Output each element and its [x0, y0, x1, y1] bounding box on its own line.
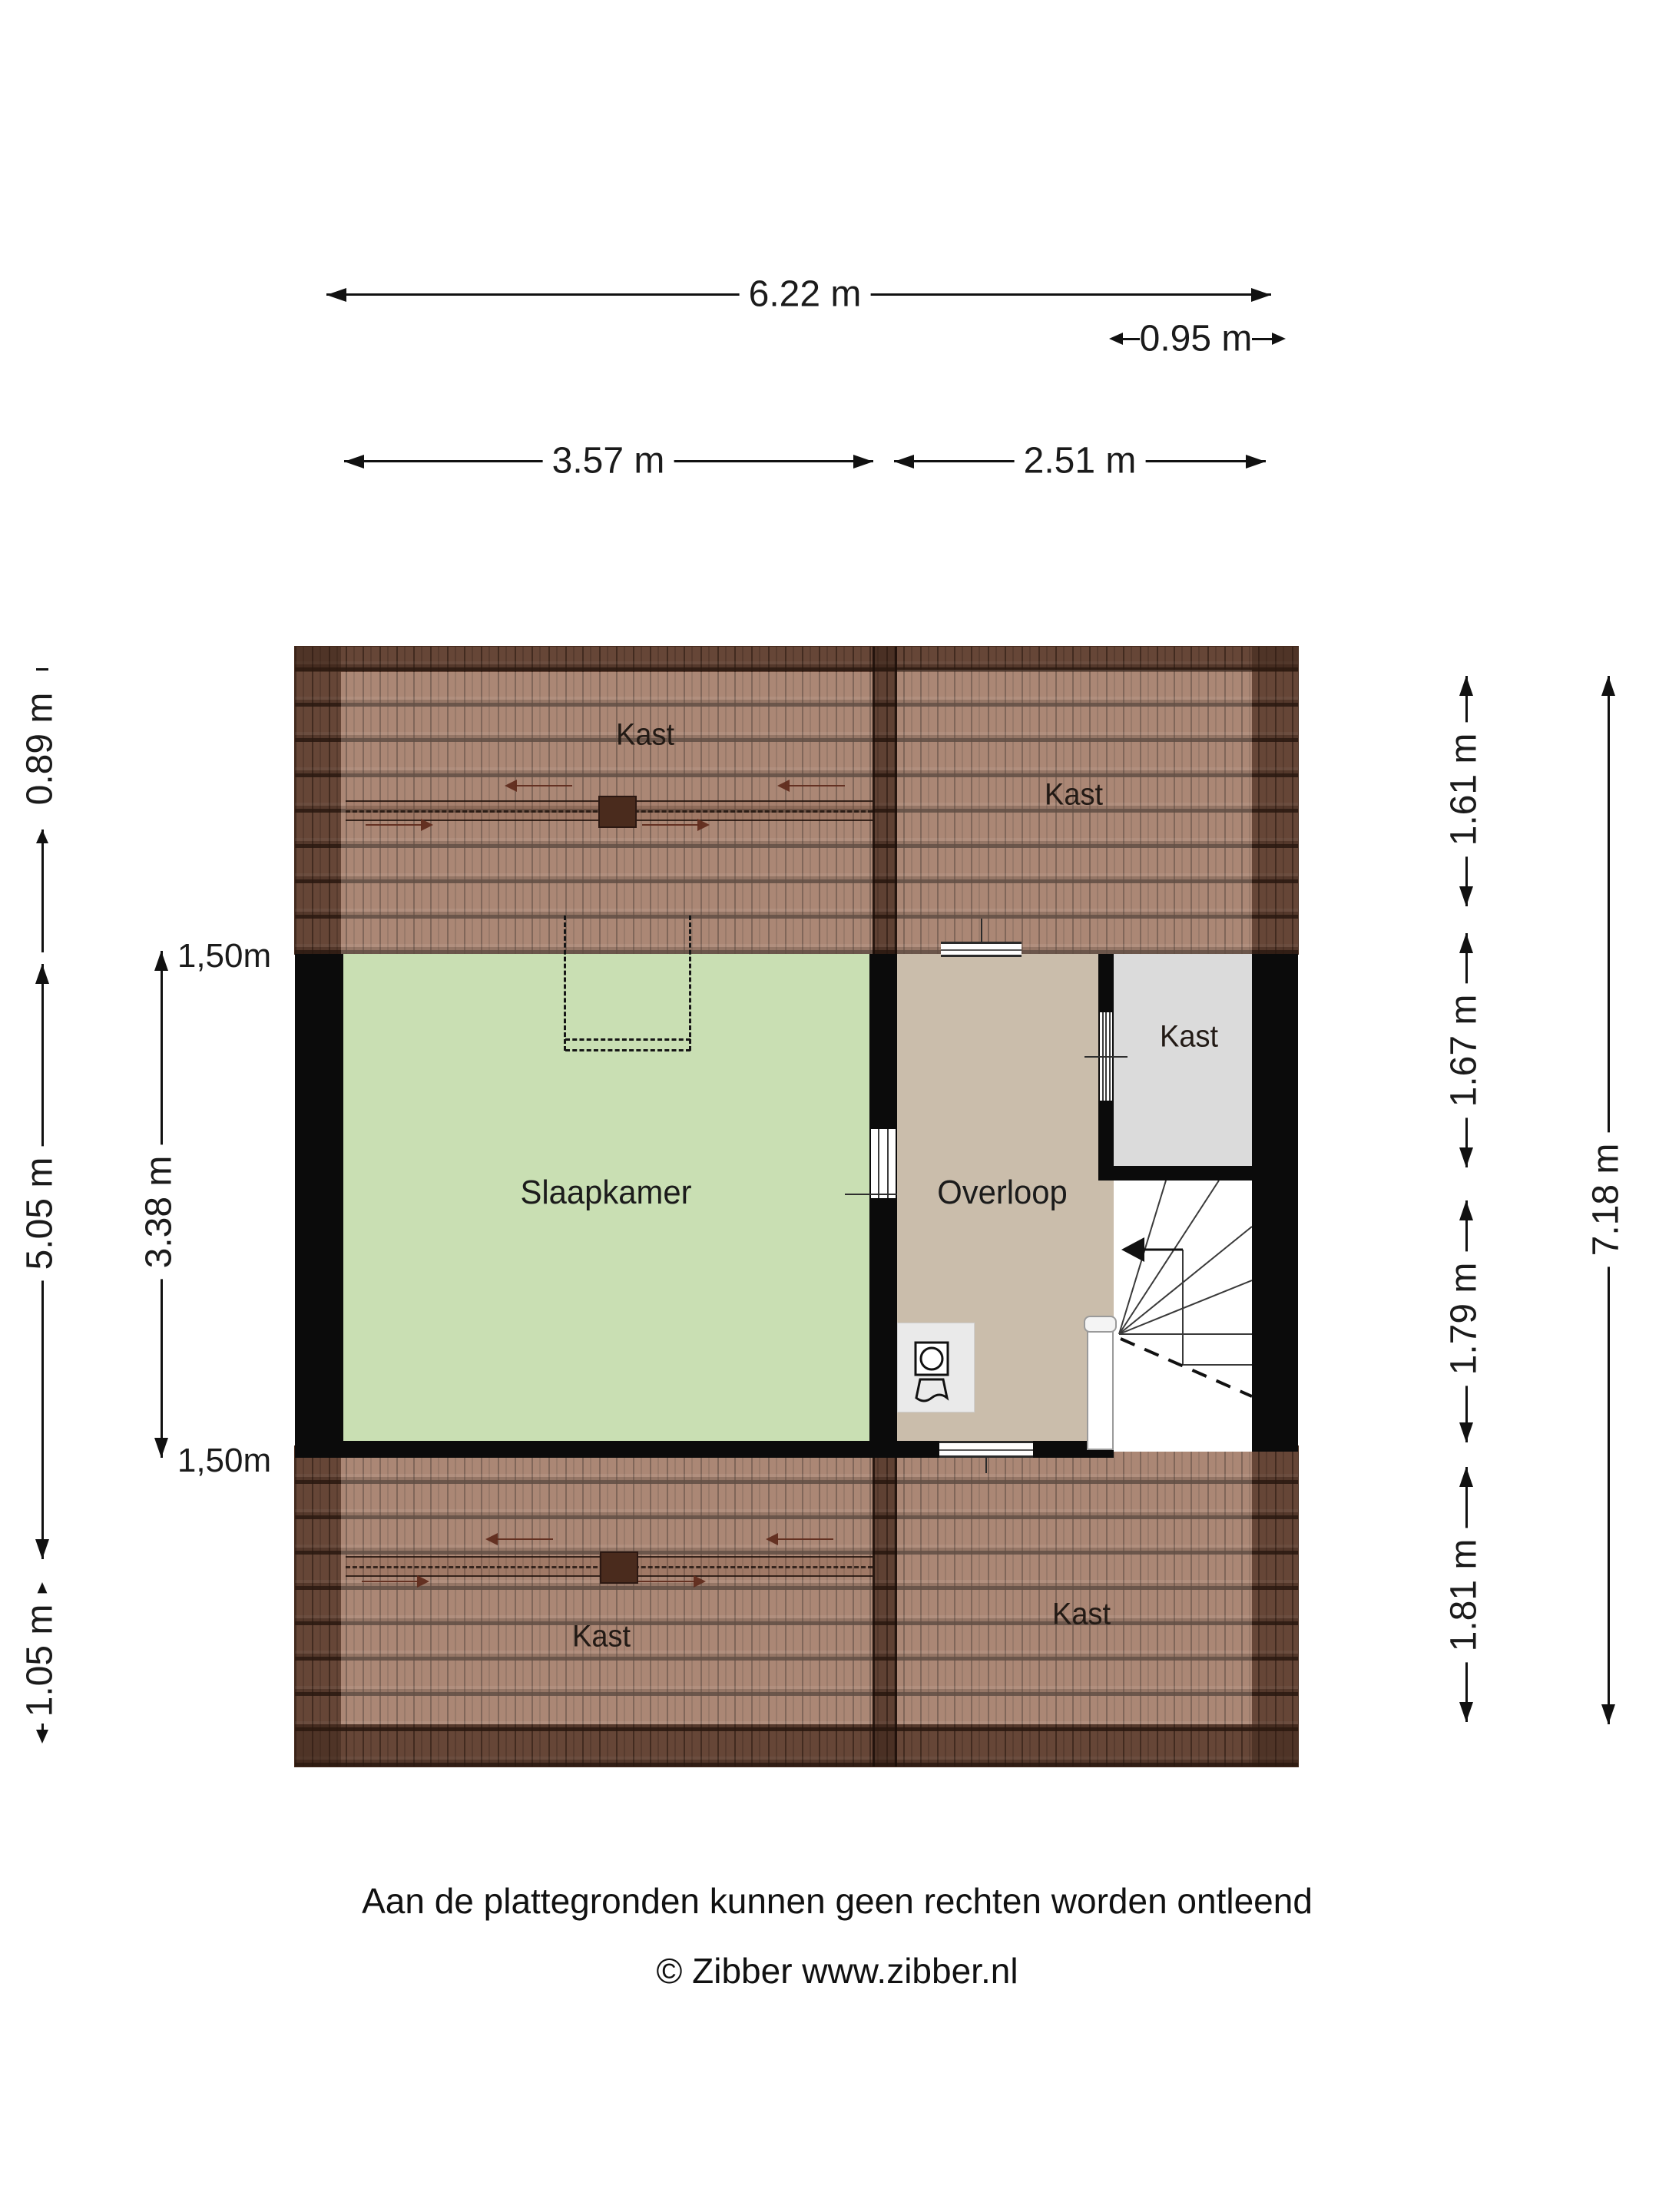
knee-height-label-bottom: 1,50m: [177, 1442, 271, 1480]
floorplan-page: Kast Kast Slaapkamer Overloop Kast Kast …: [0, 0, 1659, 2212]
dim-label-right-total: 7.18 m: [1584, 1133, 1629, 1267]
dim-label-left-total: 5.05 m: [18, 1147, 63, 1281]
dim-line: [41, 829, 44, 952]
arrowhead: [1601, 1704, 1615, 1724]
dim-label-right-landing: 1.79 m: [1442, 1252, 1487, 1386]
dim-label-top-left: 3.57 m: [543, 439, 674, 484]
window-stub: [981, 919, 982, 942]
dim-label-right-roof-bottom: 1.81 m: [1442, 1528, 1487, 1663]
washing-machine-icon: [910, 1336, 953, 1402]
roof-eave: [295, 647, 1298, 672]
stair-railing: [1087, 1317, 1114, 1450]
dormer-dashed-bottom: [565, 1049, 690, 1051]
dim-label-right-roof-top: 1.61 m: [1442, 723, 1487, 857]
roof-window-arrow-icon: [642, 824, 699, 826]
arrowhead: [1272, 333, 1286, 345]
roof-window-center-block: [598, 796, 637, 828]
footer-disclaimer: Aan de plattegronden kunnen geen rechten…: [362, 1880, 1313, 1922]
arrowhead: [1459, 1702, 1473, 1722]
window-overloop-bottom: [939, 1441, 1033, 1458]
roof-eave: [1252, 647, 1298, 954]
arrowhead: [1459, 1467, 1473, 1487]
arrowhead: [1459, 1200, 1473, 1220]
door-tick: [1084, 1056, 1128, 1058]
arrowhead: [154, 951, 168, 971]
roof-eave: [1252, 1446, 1298, 1767]
roof-bottom-right-inner: [897, 1452, 1252, 1724]
roof-window-arrow-icon: [496, 1538, 553, 1540]
dim-label-left-roof-bottom: 1.05 m: [18, 1594, 63, 1728]
dormer-dashed-left: [564, 916, 566, 1051]
roof-window-arrow-icon: [362, 1581, 419, 1582]
roof-eave: [295, 1446, 341, 1767]
room-label-kast-top-left: Kast: [616, 718, 674, 753]
arrowhead: [1246, 455, 1266, 469]
footer-copyright: © Zibber www.zibber.nl: [656, 1950, 1018, 1992]
arrowhead: [36, 829, 48, 843]
wall-slaapkamer-overloop: [869, 954, 897, 1442]
window-stub: [985, 1458, 987, 1473]
room-label-overloop: Overloop: [937, 1174, 1068, 1212]
roof-eave: [295, 1724, 1298, 1767]
dim-label-top-right: 2.51 m: [1015, 439, 1146, 484]
roof-divider-wall: [873, 647, 897, 954]
arrowhead: [154, 1438, 168, 1458]
arrowhead: [1601, 676, 1615, 696]
dim-line-top-offset: [1252, 338, 1272, 340]
roof-window-arrow-icon: [515, 785, 572, 786]
arrowhead: [326, 288, 346, 302]
knee-height-label-top: 1,50m: [177, 937, 271, 975]
wall-kast-bottom: [1098, 1166, 1252, 1181]
arrowhead: [35, 964, 49, 984]
dormer-dashed-bottom: [565, 1038, 690, 1041]
dim-label-right-closet: 1.67 m: [1442, 984, 1487, 1118]
door-tick: [845, 1194, 897, 1195]
arrowhead: [1459, 933, 1473, 953]
arrowhead: [1459, 1422, 1473, 1442]
room-label-kast-bottom-right: Kast: [1052, 1598, 1111, 1632]
arrowhead: [344, 455, 364, 469]
stairs-direction-arrow-icon: [1121, 1237, 1144, 1262]
dim-label-left-roof-top: 0.89 m: [18, 682, 63, 816]
roof-window-arrow-icon: [777, 1538, 833, 1540]
roof-eave: [295, 647, 341, 954]
door-slaapkamer-overloop: [871, 1129, 896, 1198]
roof-window-center-block: [600, 1551, 638, 1584]
dim-label-top-total: 6.22 m: [740, 272, 871, 317]
roof-divider-wall: [873, 1446, 897, 1767]
arrowhead: [853, 455, 873, 469]
arrowhead: [1459, 1147, 1473, 1167]
dormer-dashed-right: [689, 916, 691, 1051]
room-label-kast-top-right: Kast: [1045, 778, 1103, 813]
arrowhead: [1459, 886, 1473, 906]
room-label-kast-middle: Kast: [1160, 1020, 1218, 1055]
wall-right: [1252, 954, 1298, 1452]
stair-railing-cap: [1084, 1316, 1117, 1333]
wall-left: [295, 954, 343, 1442]
roof-window-arrow-icon: [366, 824, 422, 826]
arrowhead: [1251, 288, 1271, 302]
arrowhead: [36, 1730, 48, 1743]
arrowhead: [894, 455, 914, 469]
dim-tick: [36, 668, 48, 671]
staircase: [1114, 1181, 1252, 1452]
room-kast-middle: [1114, 954, 1252, 1166]
roof-window-arrow-icon: [638, 1581, 695, 1582]
dim-label-left-room: 3.38 m: [137, 1145, 182, 1280]
dim-label-top-offset: 0.95 m: [1131, 316, 1262, 362]
room-label-kast-bottom-left: Kast: [572, 1620, 631, 1654]
roof-window-arrow-icon: [788, 785, 845, 786]
window-overloop-top: [941, 942, 1022, 957]
arrowhead: [35, 1539, 49, 1559]
room-label-slaapkamer: Slaapkamer: [520, 1174, 691, 1212]
arrowhead: [1109, 333, 1123, 345]
arrowhead: [1459, 676, 1473, 696]
